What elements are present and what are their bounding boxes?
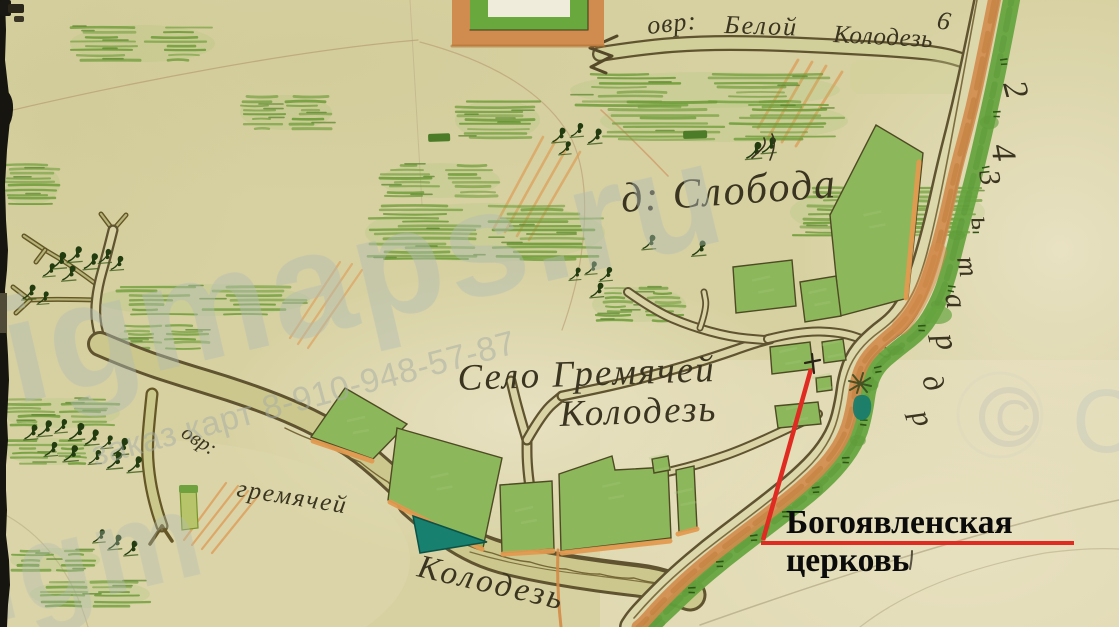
svg-text:овр:: овр: xyxy=(646,6,699,40)
svg-text:C: C xyxy=(1072,372,1119,472)
svg-text:Богоявленская: Богоявленская xyxy=(786,504,1013,541)
svg-text:Белой: Белой xyxy=(723,10,799,42)
svg-text:Колодезь: Колодезь xyxy=(832,21,934,53)
svg-text:C: C xyxy=(995,390,1031,446)
svg-text:Колодезь: Колодезь xyxy=(558,389,718,436)
svg-text:церковь: церковь xyxy=(786,542,909,579)
